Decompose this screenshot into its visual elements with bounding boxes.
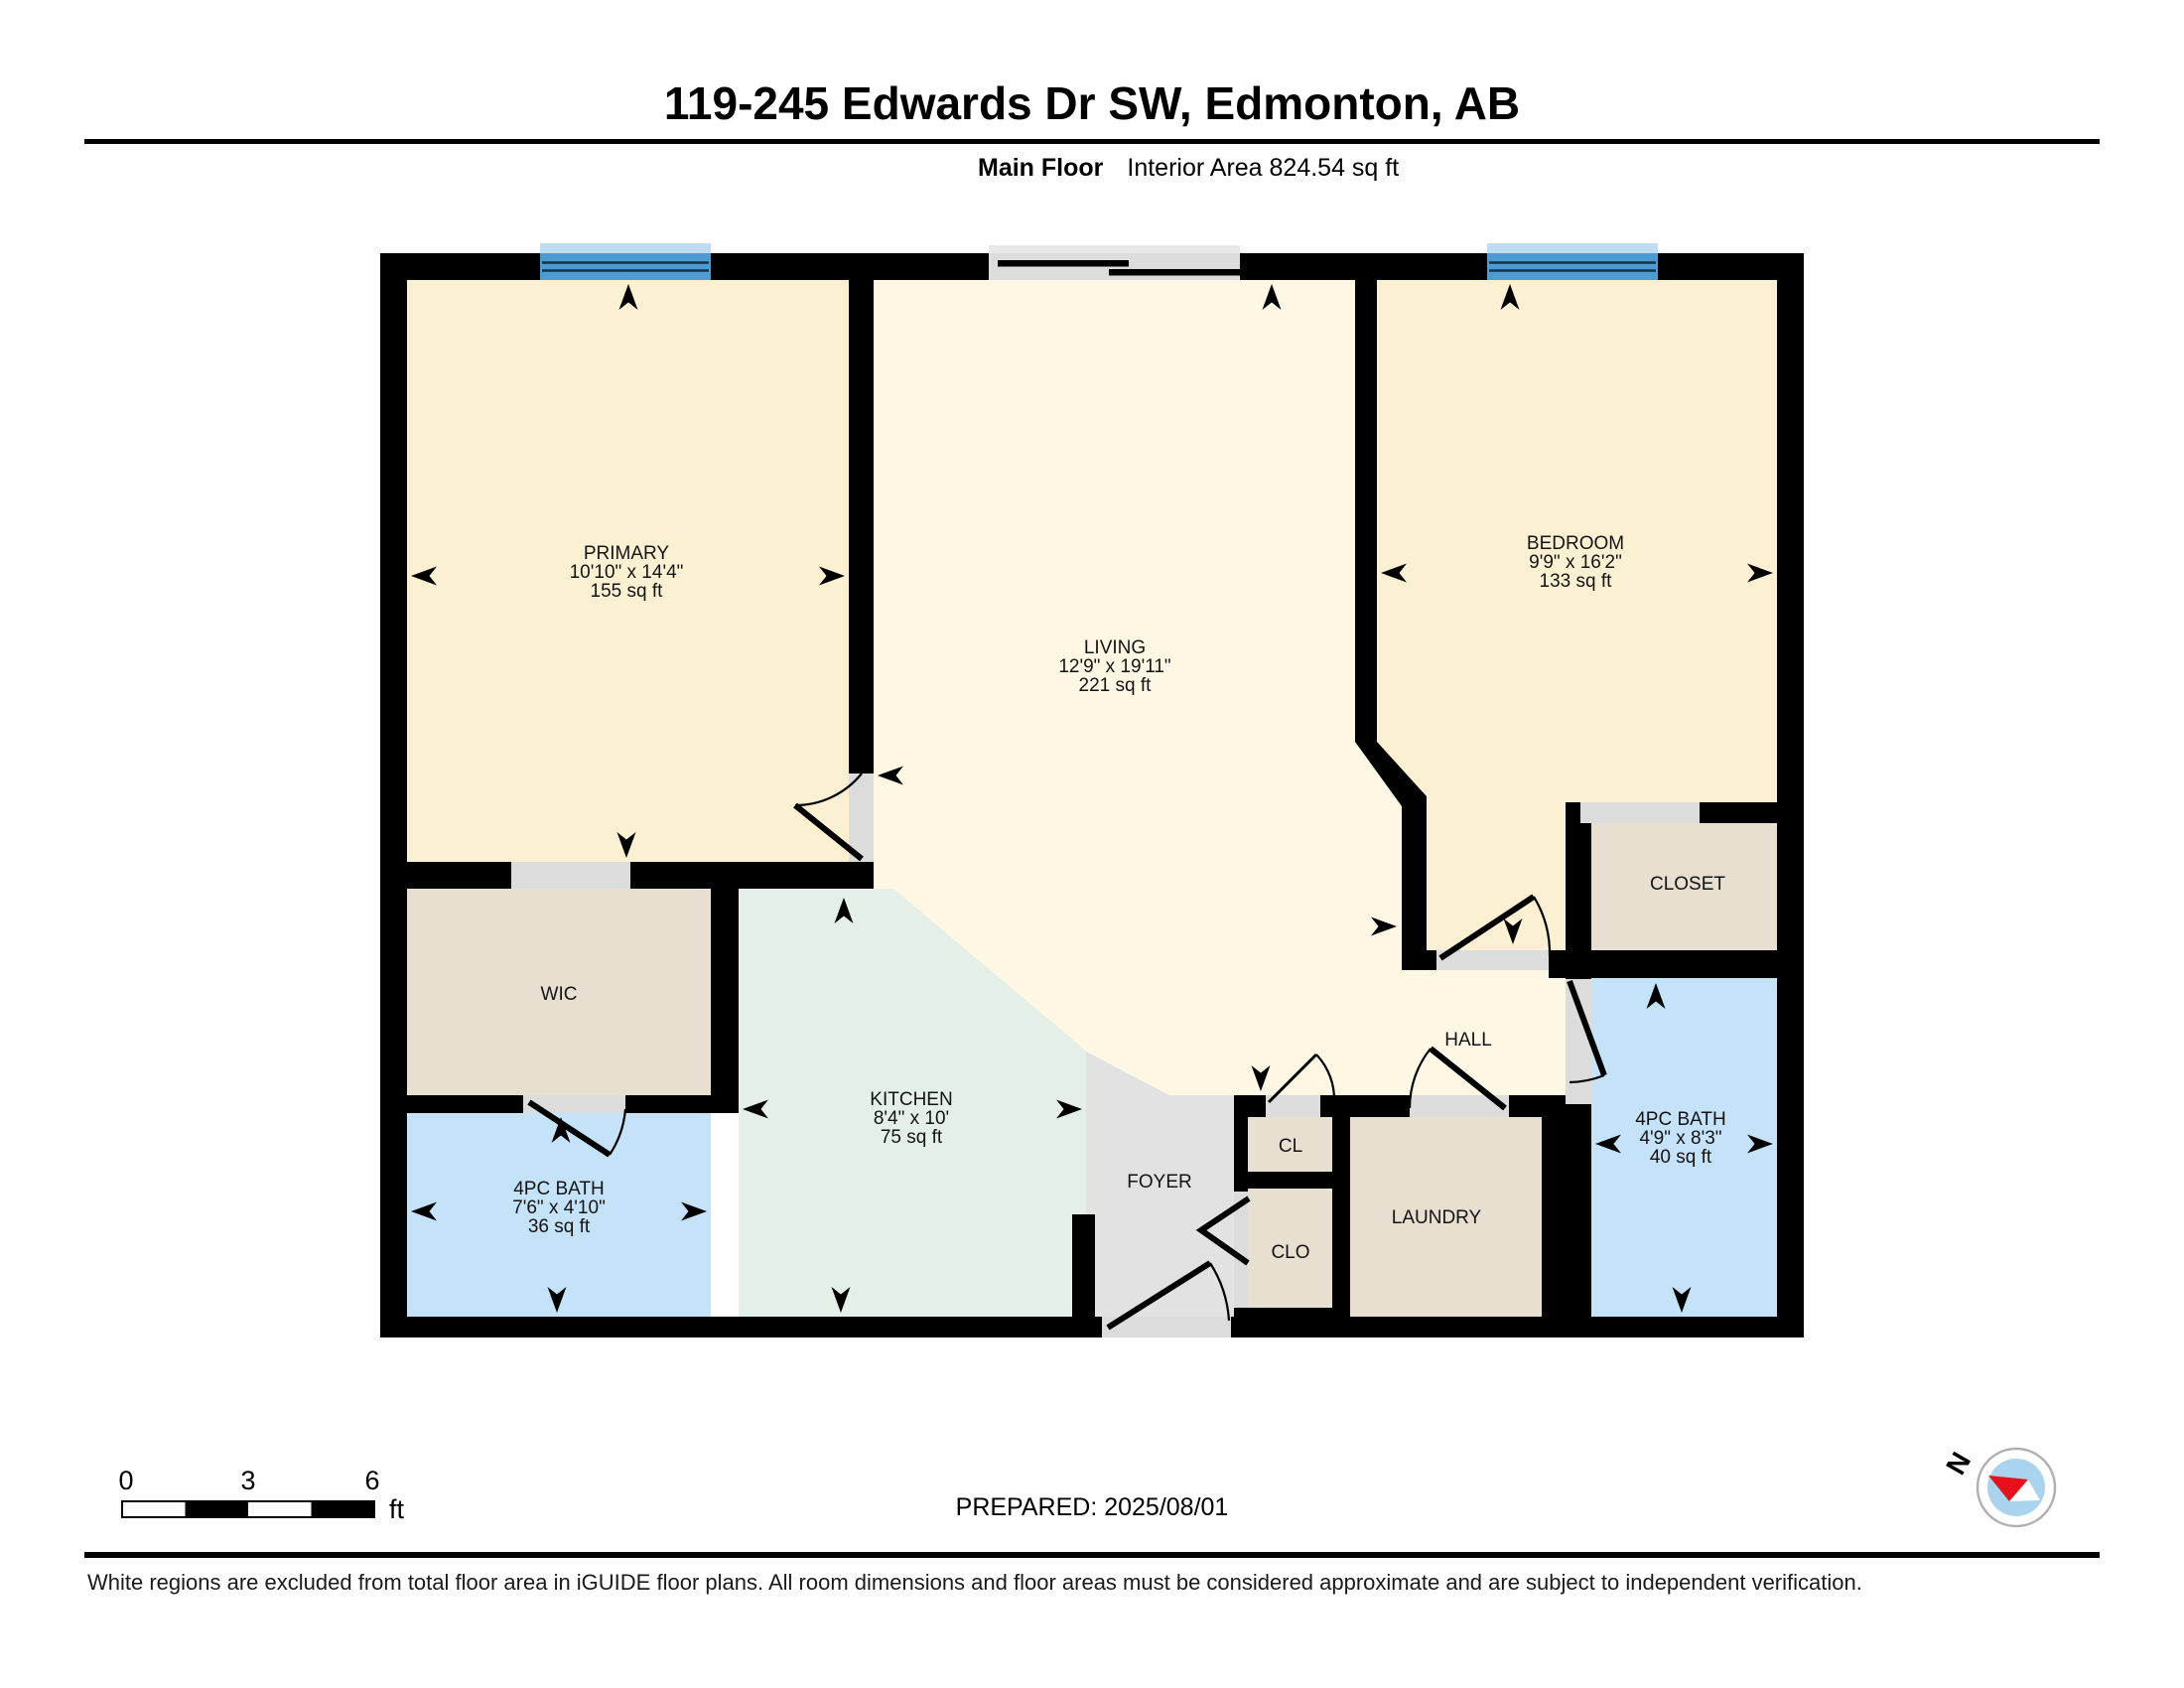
room-bath-right-label: 4PC BATH	[1635, 1109, 1726, 1130]
wall	[1566, 823, 1591, 950]
room-laundry-label: LAUNDRY	[1392, 1207, 1482, 1228]
opening-closet-door	[1580, 802, 1700, 823]
floor-label: Main Floor	[978, 154, 1104, 182]
footer-divider	[84, 1552, 2100, 1558]
room-kitchen-area: 75 sq ft	[881, 1127, 943, 1148]
wall	[1566, 950, 1777, 978]
room-kitchen-dims: 8'4" x 10'	[874, 1108, 949, 1129]
room-living-dims: 12'9" x 19'11"	[1058, 656, 1170, 677]
header-divider	[84, 139, 2100, 144]
wall	[1542, 1117, 1566, 1317]
wall	[1248, 1308, 1350, 1337]
scale-unit-label: ft	[389, 1494, 405, 1524]
room-bedroom-area: 133 sq ft	[1540, 571, 1613, 592]
scale-bar-segment	[186, 1501, 249, 1517]
room-hall-label: HALL	[1444, 1030, 1492, 1051]
scale-tick-3: 3	[240, 1466, 255, 1495]
wall	[1332, 1117, 1350, 1337]
room-kitchen-label: KITCHEN	[870, 1089, 952, 1110]
window-sill	[1487, 243, 1658, 253]
room-bedroom-dims: 9'9" x 16'2"	[1529, 552, 1622, 573]
wall	[1355, 280, 1377, 742]
compass-north-label: N	[1940, 1447, 1977, 1479]
room-cl-label: CL	[1279, 1136, 1302, 1157]
window-sill	[540, 243, 711, 253]
interior-area-label: Interior Area 824.54 sq ft	[1127, 154, 1399, 182]
room-bath-right-area: 40 sq ft	[1650, 1147, 1712, 1168]
compass-icon: N	[1940, 1447, 2055, 1526]
prepared-date: PREPARED: 2025/08/01	[956, 1493, 1229, 1521]
sliding-door-panel	[1109, 269, 1240, 276]
room-primary-dims: 10'10" x 14'4"	[570, 562, 684, 583]
window-icon	[1487, 253, 1658, 280]
room-foyer-label: FOYER	[1127, 1172, 1191, 1193]
window-icon	[540, 253, 711, 280]
room-closet-label: CLOSET	[1650, 874, 1725, 895]
wall	[1777, 253, 1804, 1337]
room-bath-left-label: 4PC BATH	[513, 1179, 605, 1199]
room-bath-left-dims: 7'6" x 4'10"	[512, 1197, 606, 1218]
disclaimer-text: White regions are excluded from total fl…	[87, 1570, 1862, 1595]
room-bedroom-label: BEDROOM	[1527, 533, 1624, 554]
page-title: 119-245 Edwards Dr SW, Edmonton, AB	[664, 77, 1520, 129]
room-wic-label: WIC	[541, 984, 578, 1005]
room-living-area: 221 sq ft	[1079, 675, 1153, 696]
room-clo-label: CLO	[1271, 1242, 1309, 1263]
wall	[1248, 1172, 1332, 1189]
floor-plan-page: 119-245 Edwards Dr SW, Edmonton, AB Main…	[0, 0, 2184, 1688]
scale-tick-0: 0	[118, 1466, 133, 1495]
wall	[380, 253, 407, 1337]
wall	[711, 889, 739, 1113]
room-bath-right-dims: 4'9" x 8'3"	[1639, 1128, 1721, 1149]
room-bath-left-area: 36 sq ft	[528, 1216, 591, 1237]
scale-bar-segment	[312, 1501, 375, 1517]
room-primary-area: 155 sq ft	[591, 581, 664, 602]
room-living-label: LIVING	[1084, 637, 1146, 658]
room-primary-label: PRIMARY	[584, 543, 670, 564]
sliding-door-sill	[989, 245, 1240, 253]
floor-subtitle: Main FloorInterior Area 824.54 sq ft	[978, 154, 1399, 182]
wall	[1402, 950, 1436, 970]
wall	[1072, 1214, 1095, 1337]
scale-tick-6: 6	[364, 1466, 379, 1495]
scale-bar: 0 3 6 ft	[118, 1466, 404, 1524]
opening-wic-entry	[511, 862, 630, 889]
sliding-door-panel	[998, 260, 1129, 267]
